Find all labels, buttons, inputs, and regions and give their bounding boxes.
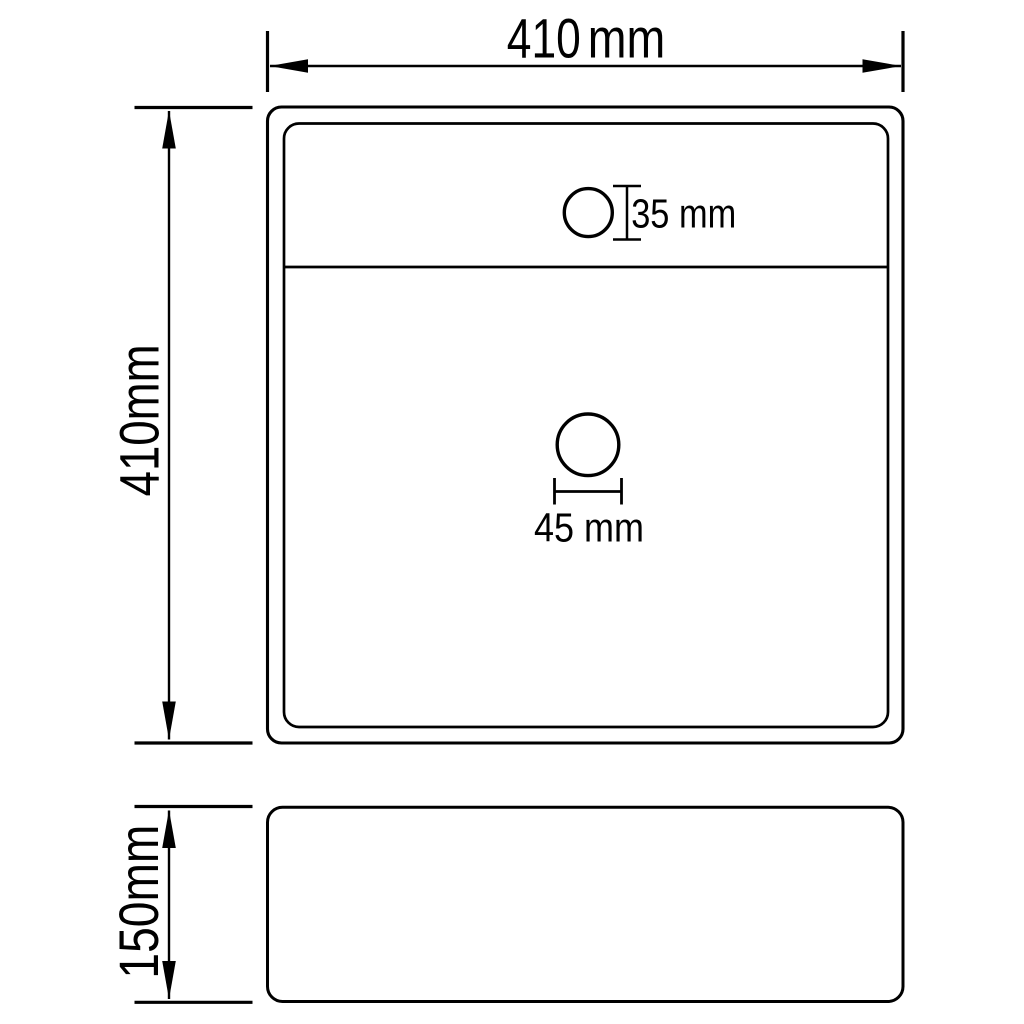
svg-text:410mm: 410mm xyxy=(107,344,170,496)
svg-text:mm: mm xyxy=(588,7,666,70)
svg-text:410: 410 xyxy=(507,7,581,70)
svg-text:150mm: 150mm xyxy=(107,825,170,979)
svg-text:45 mm: 45 mm xyxy=(534,505,644,551)
svg-text:35 mm: 35 mm xyxy=(631,191,736,237)
